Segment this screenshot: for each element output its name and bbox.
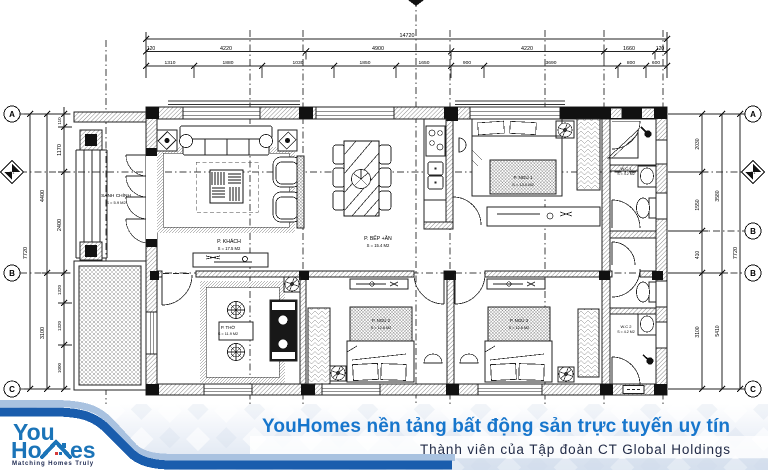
svg-text:P. NGỦ 2: P. NGỦ 2: [372, 318, 391, 323]
svg-text:2400: 2400: [57, 219, 63, 231]
svg-text:1000: 1000: [57, 362, 62, 373]
svg-text:120: 120: [656, 46, 665, 52]
svg-text:C: C: [750, 385, 756, 394]
svg-text:120: 120: [147, 46, 156, 52]
svg-text:4400: 4400: [40, 190, 46, 202]
svg-text:3100: 3100: [695, 326, 701, 337]
svg-text:P. THỜ: P. THỜ: [221, 325, 236, 330]
svg-text:14720: 14720: [400, 33, 415, 39]
svg-text:3580: 3580: [715, 190, 721, 201]
svg-text:5410: 5410: [715, 325, 721, 336]
svg-text:900: 900: [463, 60, 471, 66]
svg-text:1550: 1550: [695, 199, 701, 210]
svg-text:1660: 1660: [623, 46, 635, 52]
svg-text:A: A: [750, 110, 756, 119]
svg-text:3690: 3690: [546, 60, 557, 66]
svg-text:S = 13.0 M2: S = 13.0 M2: [512, 182, 534, 187]
svg-text:B1: B1: [751, 170, 757, 175]
svg-text:1650: 1650: [419, 60, 430, 66]
svg-text:W.C 1: W.C 1: [621, 166, 633, 171]
svg-text:B: B: [750, 227, 756, 236]
svg-text:P. BẾP +ĂN: P. BẾP +ĂN: [364, 235, 392, 242]
svg-text:S = 5.9 M2: S = 5.9 M2: [106, 200, 126, 205]
svg-text:Thành viên của Tập đoàn CT Glo: Thành viên của Tập đoàn CT Global Holdin…: [420, 442, 730, 457]
svg-text:1880: 1880: [223, 60, 234, 66]
svg-text:4220: 4220: [220, 46, 232, 52]
svg-text:2030: 2030: [695, 138, 701, 149]
svg-text:C: C: [9, 385, 15, 394]
svg-text:W.C 2: W.C 2: [621, 324, 633, 329]
svg-text:S = 4.2 M2: S = 4.2 M2: [617, 330, 634, 334]
svg-text:1850: 1850: [360, 60, 371, 66]
svg-text:S = 11.9 M2: S = 11.9 M2: [218, 332, 238, 336]
svg-text:B: B: [9, 269, 15, 278]
svg-text:4900: 4900: [372, 46, 384, 52]
svg-text:3100: 3100: [40, 327, 46, 339]
svg-text:B1: B1: [10, 170, 16, 175]
svg-text:P. KHÁCH: P. KHÁCH: [217, 238, 241, 245]
svg-text:P. NGỦ 3: P. NGỦ 3: [510, 318, 529, 323]
svg-text:110: 110: [57, 117, 62, 125]
svg-text:YouHomes nền tảng bất động sản: YouHomes nền tảng bất động sản trực tuyế…: [262, 416, 730, 437]
svg-text:7720: 7720: [23, 247, 29, 259]
svg-text:1030: 1030: [293, 60, 304, 66]
svg-text:7720: 7720: [733, 247, 739, 259]
svg-text:S = 17.5 M2: S = 17.5 M2: [218, 246, 241, 251]
svg-text:4220: 4220: [521, 46, 533, 52]
svg-text:S = 4.2 M2: S = 4.2 M2: [617, 172, 634, 176]
svg-text:A: A: [9, 110, 15, 119]
svg-text:1310: 1310: [165, 60, 176, 66]
svg-text:800: 800: [627, 60, 635, 66]
svg-text:S = 12.6 M2: S = 12.6 M2: [371, 326, 392, 330]
svg-text:1320: 1320: [57, 284, 62, 295]
svg-text:1170: 1170: [57, 144, 63, 156]
svg-text:SẢNH CHÍNH: SẢNH CHÍNH: [101, 192, 131, 199]
svg-text:S = 15.4 M2: S = 15.4 M2: [367, 243, 390, 248]
svg-text:P. NGỦ 1: P. NGỦ 1: [513, 174, 533, 180]
svg-text:S = 12.6 M2: S = 12.6 M2: [509, 326, 530, 330]
svg-text:Matching Homes Truly: Matching Homes Truly: [12, 460, 94, 467]
svg-text:B: B: [750, 269, 756, 278]
svg-text:600: 600: [652, 60, 660, 66]
svg-text:1320: 1320: [57, 320, 62, 331]
svg-text:410: 410: [695, 251, 701, 260]
